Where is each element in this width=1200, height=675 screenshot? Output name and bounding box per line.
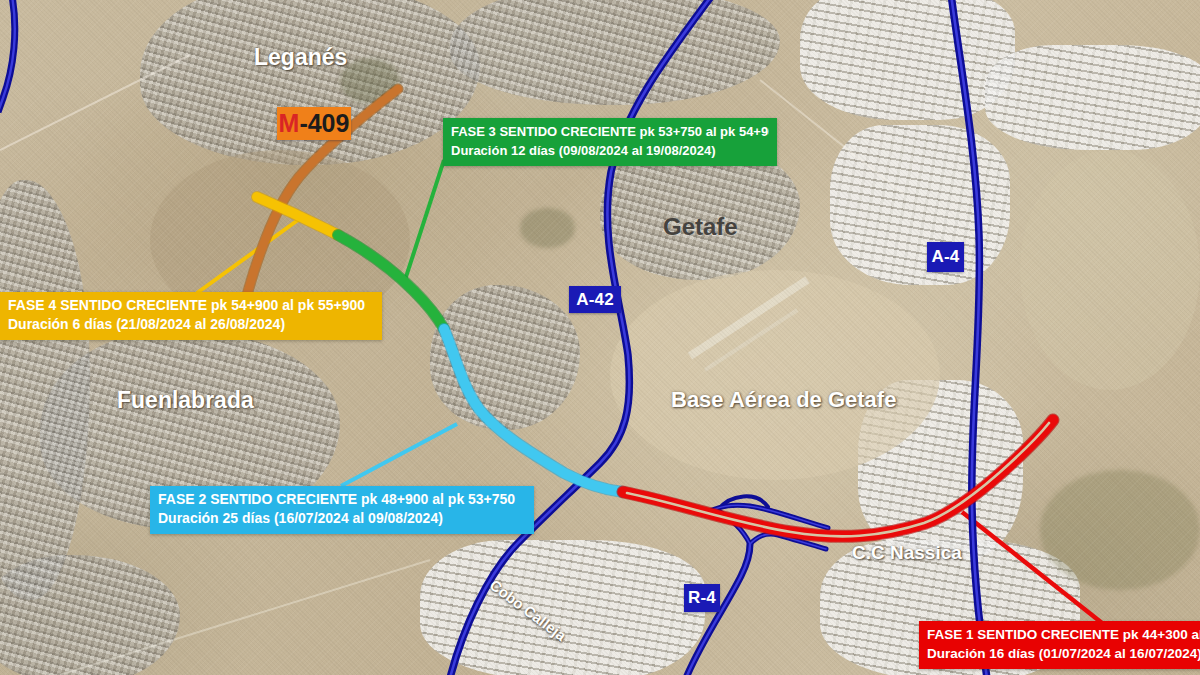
phase-box-fase2: FASE 2 SENTIDO CRECIENTE pk 48+900 al pk… — [150, 486, 534, 534]
map-label-base-aerea: Base Aérea de Getafe — [671, 387, 896, 413]
fase3-callout-line — [404, 160, 444, 283]
minor-road — [60, 560, 430, 675]
fase2-line1: FASE 2 SENTIDO CRECIENTE pk 48+900 al pk… — [158, 490, 526, 509]
route-fase1-red — [623, 420, 1053, 536]
motorway-a42 — [450, 0, 713, 675]
road-badge-m409-prefix: M — [279, 109, 300, 138]
map-label-getafe: Getafe — [663, 213, 738, 241]
road-badge-m409: M-409 — [277, 107, 351, 140]
phase-box-fase1: FASE 1 SENTIDO CRECIENTE pk 44+300 al Du… — [919, 621, 1200, 669]
fase2-callout-line — [341, 424, 457, 486]
minor-road — [760, 80, 905, 195]
minor-road — [0, 55, 190, 150]
fase3-line2: Duración 12 días (09/08/2024 al 19/08/20… — [451, 141, 769, 160]
fase2-line2: Duración 25 días (16/07/2024 al 09/08/20… — [158, 509, 526, 528]
phase-box-fase4: FASE 4 SENTIDO CRECIENTE pk 54+900 al pk… — [0, 292, 382, 340]
motorway-corner-road — [0, 0, 15, 112]
road-badge-a42: A-42 — [569, 286, 621, 313]
road-badge-r4: R-4 — [684, 584, 720, 612]
fase4-line1: FASE 4 SENTIDO CRECIENTE pk 54+900 al pk… — [8, 296, 374, 315]
map-label-fuenlabrada: Fuenlabrada — [117, 387, 254, 414]
phase-box-fase3: FASE 3 SENTIDO CRECIENTE pk 53+750 al pk… — [443, 118, 777, 166]
road-badge-a4: A-4 — [927, 242, 964, 272]
fase3-line1: FASE 3 SENTIDO CRECIENTE pk 53+750 al pk… — [451, 122, 769, 141]
fase4-line2: Duración 6 días (21/08/2024 al 26/08/202… — [8, 315, 374, 334]
map-label-leganes: Leganés — [254, 44, 347, 71]
map-label-cc-nassica: C.C Nassica — [852, 542, 962, 564]
fase1-callout-line — [962, 512, 1102, 623]
road-badge-m409-number: -409 — [299, 109, 349, 138]
satellite-map: Leganés Getafe Fuenlabrada Base Aérea de… — [0, 0, 1200, 675]
fase1-line1: FASE 1 SENTIDO CRECIENTE pk 44+300 al — [927, 625, 1200, 644]
fase1-line2: Duración 16 días (01/07/2024 al 16/07/20… — [927, 644, 1200, 663]
motorway-a4 — [951, 0, 987, 675]
